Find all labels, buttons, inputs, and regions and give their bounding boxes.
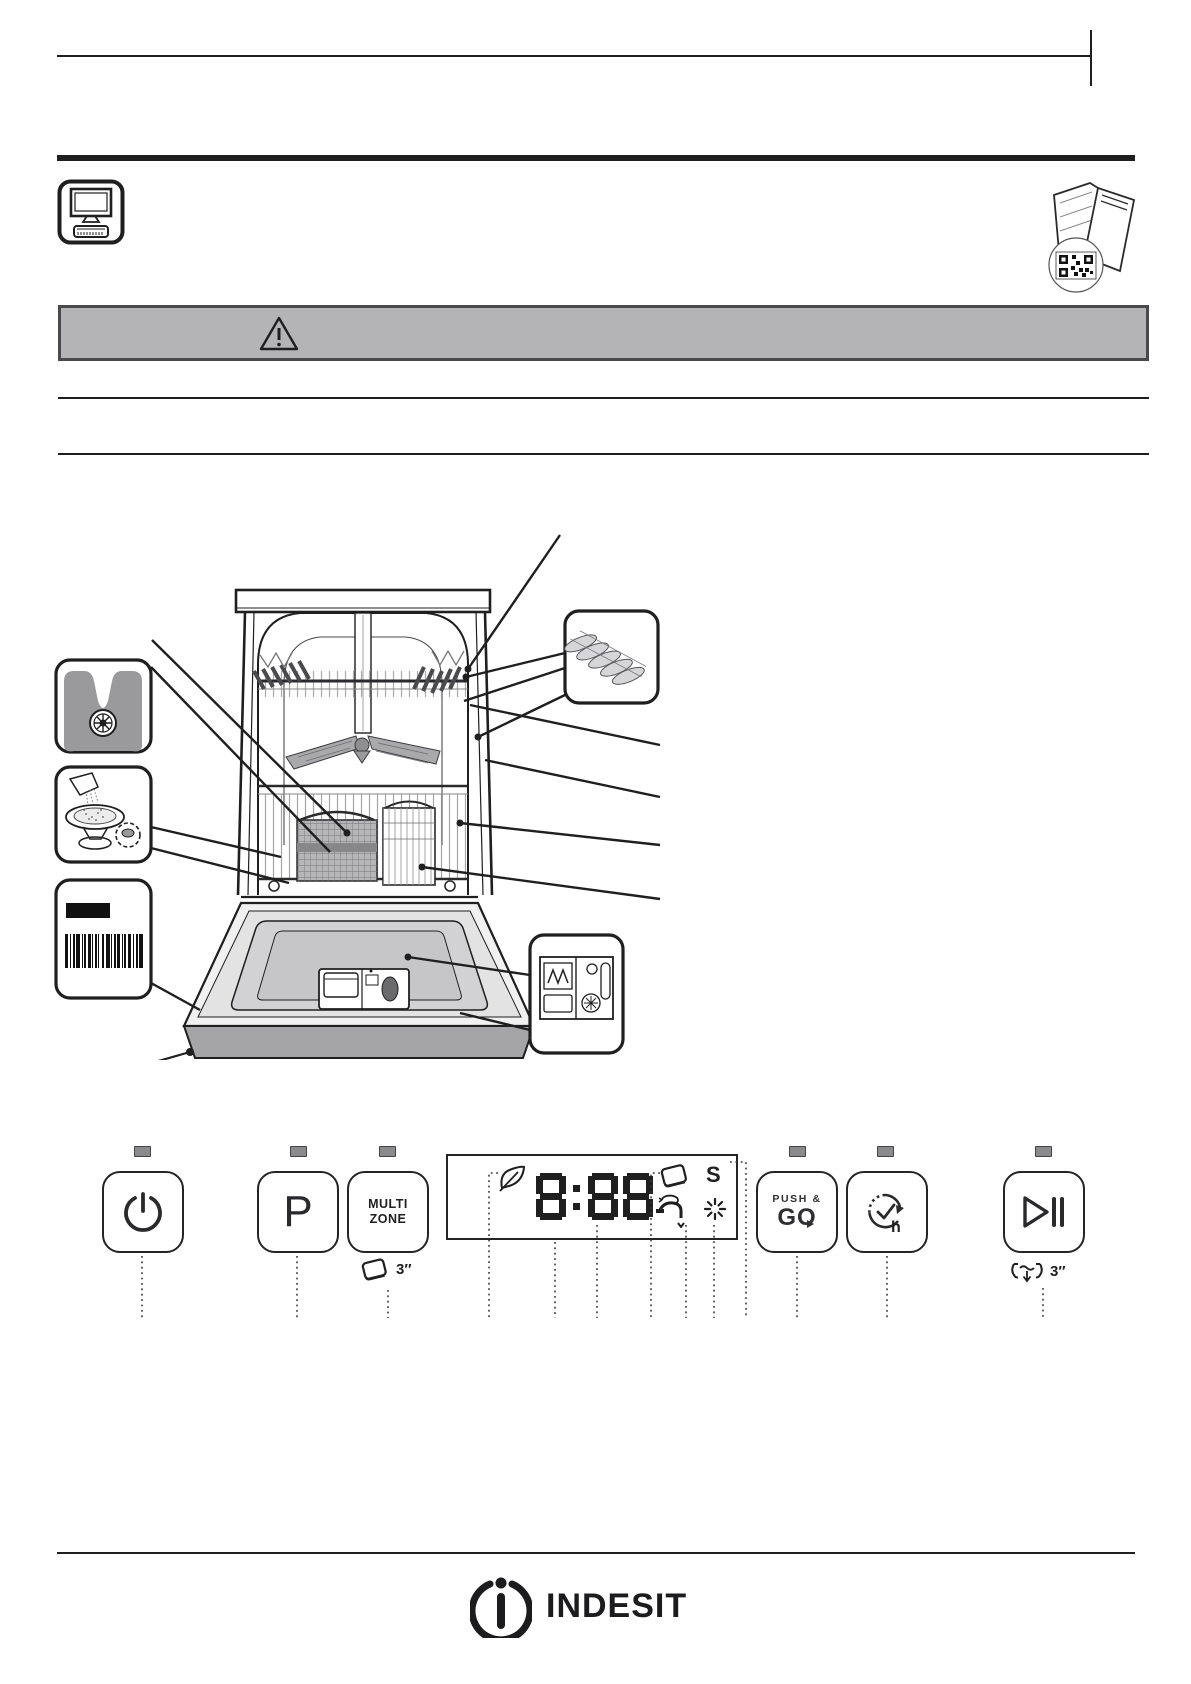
indesit-mark-icon xyxy=(470,1574,532,1638)
brand-wordmark: INDESIT xyxy=(546,1587,687,1626)
brand-logo: INDESIT xyxy=(470,1572,730,1640)
header-thick-rule xyxy=(57,155,1135,161)
header-vertical-tick xyxy=(1090,30,1092,86)
detail-box-dispenser xyxy=(530,935,623,1053)
open-door xyxy=(148,903,534,1060)
header-thin-rule xyxy=(57,55,1092,57)
detail-box-salt-fill xyxy=(56,767,151,862)
monitor-support-icon xyxy=(57,179,125,245)
separator-rule-2 xyxy=(58,453,1149,455)
detail-box-cutlery-tray xyxy=(560,611,658,703)
separator-rule-1 xyxy=(58,397,1149,399)
spray-arm xyxy=(286,736,440,769)
footer-rule xyxy=(57,1552,1135,1554)
dishwasher-qr-icon xyxy=(1038,173,1140,293)
dishwasher-diagram xyxy=(40,505,700,1060)
detail-box-rating-plate xyxy=(56,880,151,998)
control-callout-lines xyxy=(80,1150,1080,1325)
small-basket xyxy=(383,802,435,886)
kick-plate xyxy=(184,1026,534,1058)
warning-banner xyxy=(58,305,1149,361)
detergent-dispenser xyxy=(319,969,409,1009)
manual-page: P MULTI ZONE 3″ S xyxy=(0,0,1191,1684)
warning-triangle-icon xyxy=(258,315,300,353)
detail-box-filter-location xyxy=(56,660,151,752)
